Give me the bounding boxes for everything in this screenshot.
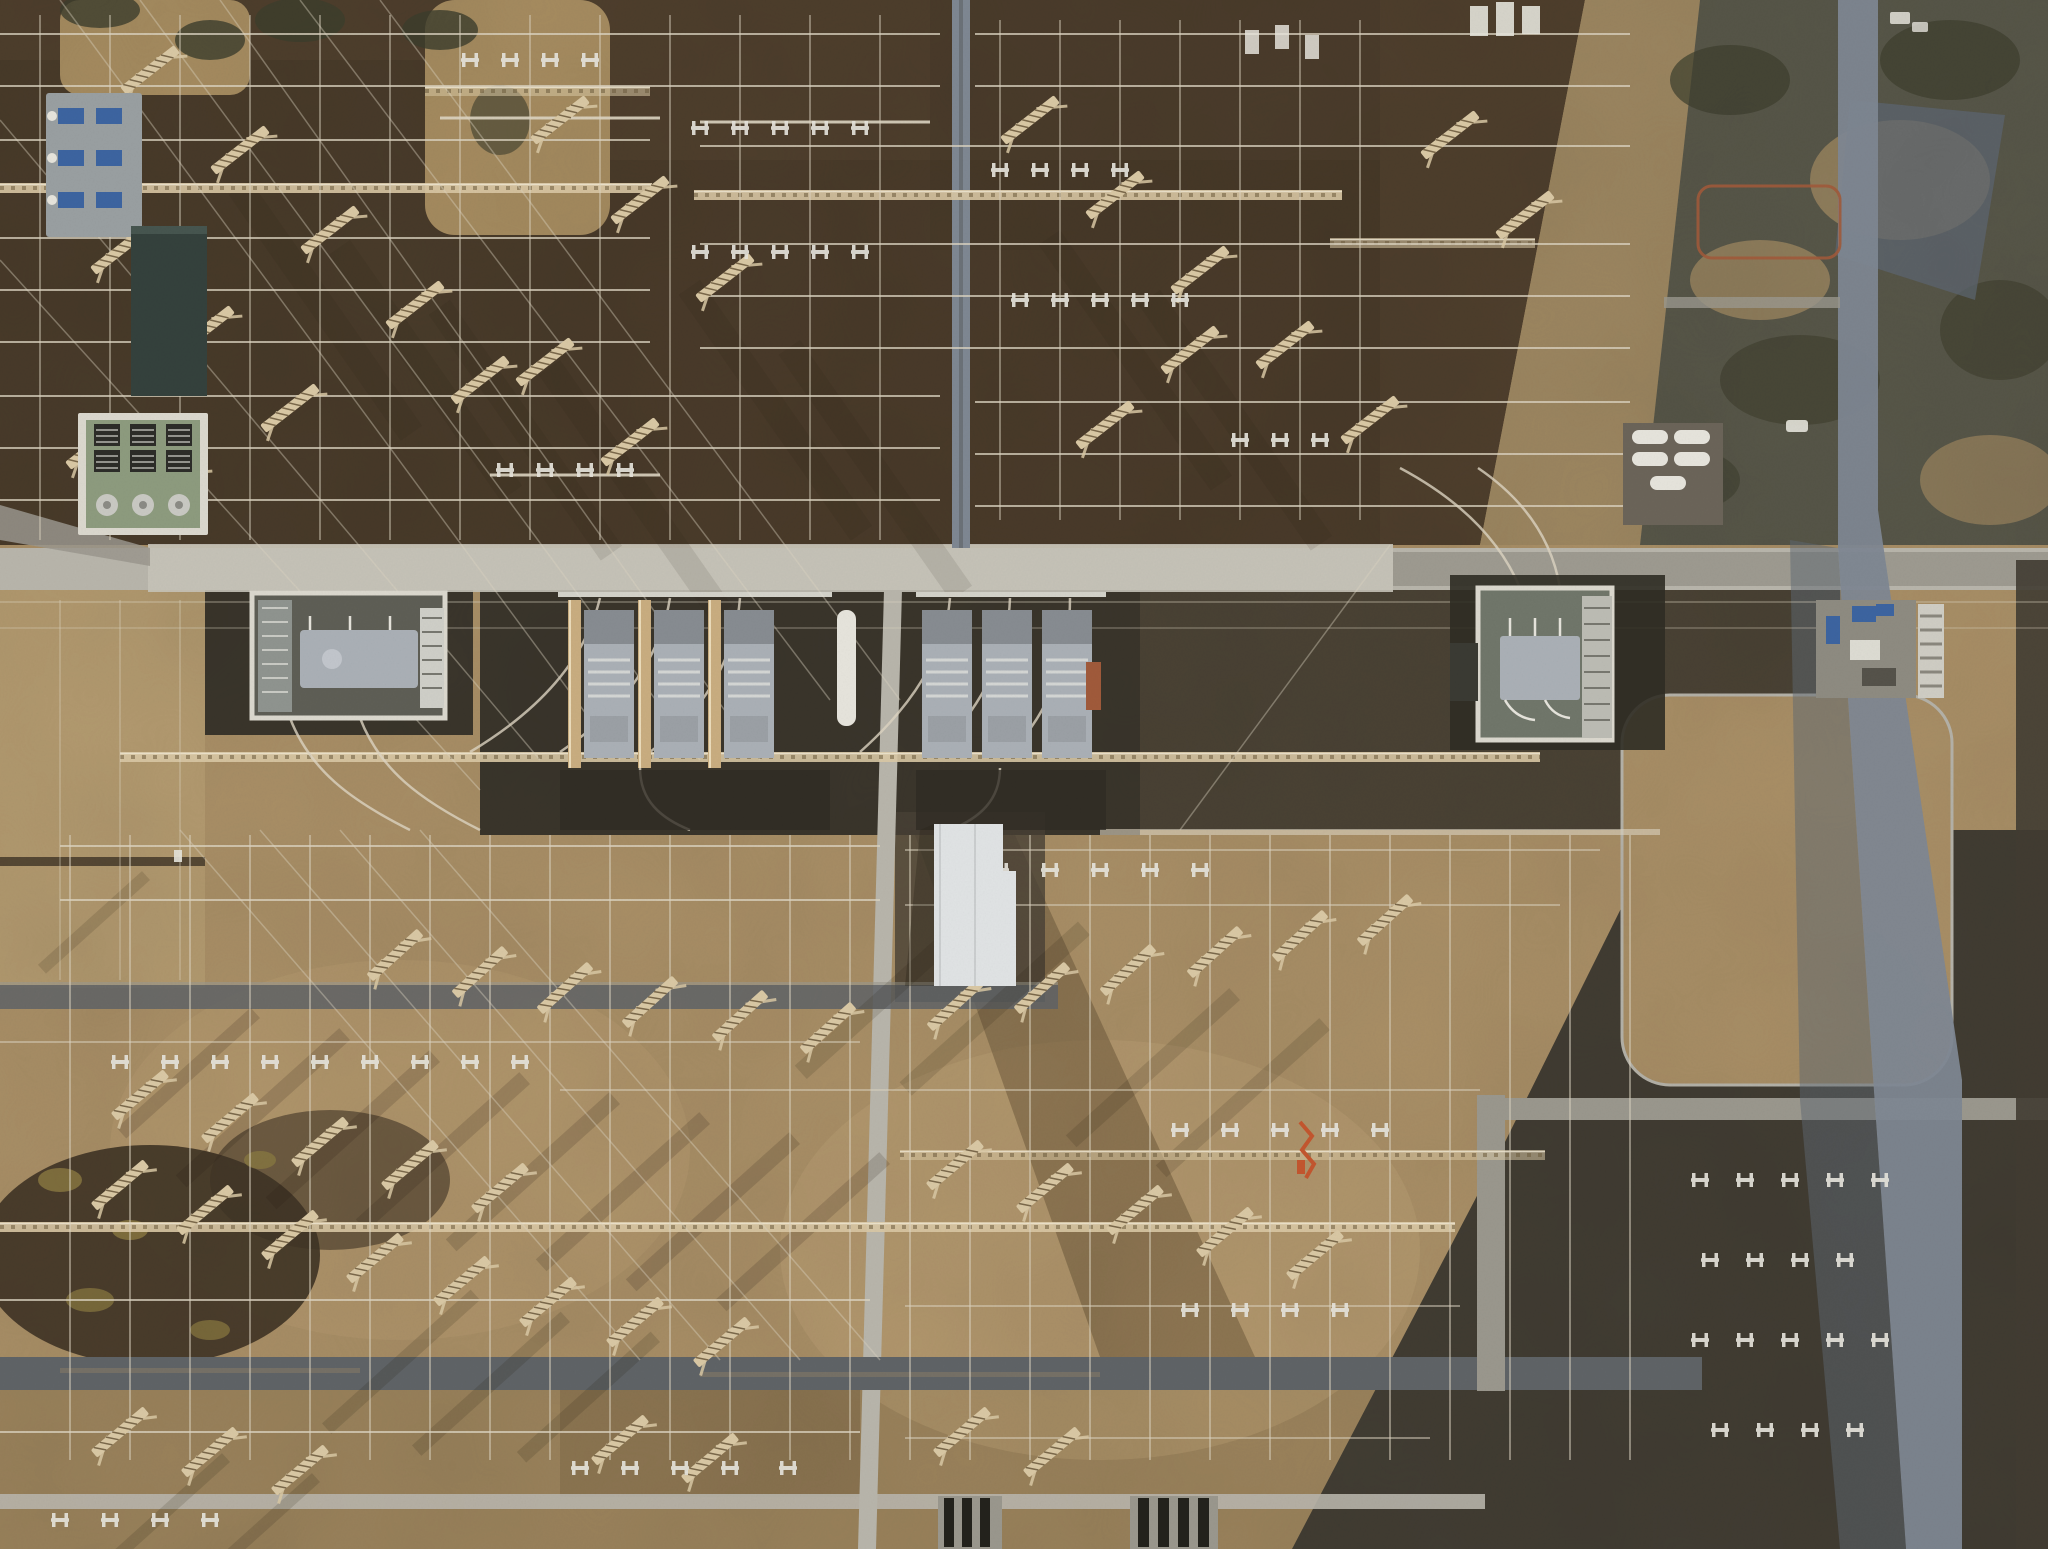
photo-grain [0, 0, 2048, 1549]
aerial-photo-substation [0, 0, 2048, 1549]
scene-svg [0, 0, 2048, 1549]
